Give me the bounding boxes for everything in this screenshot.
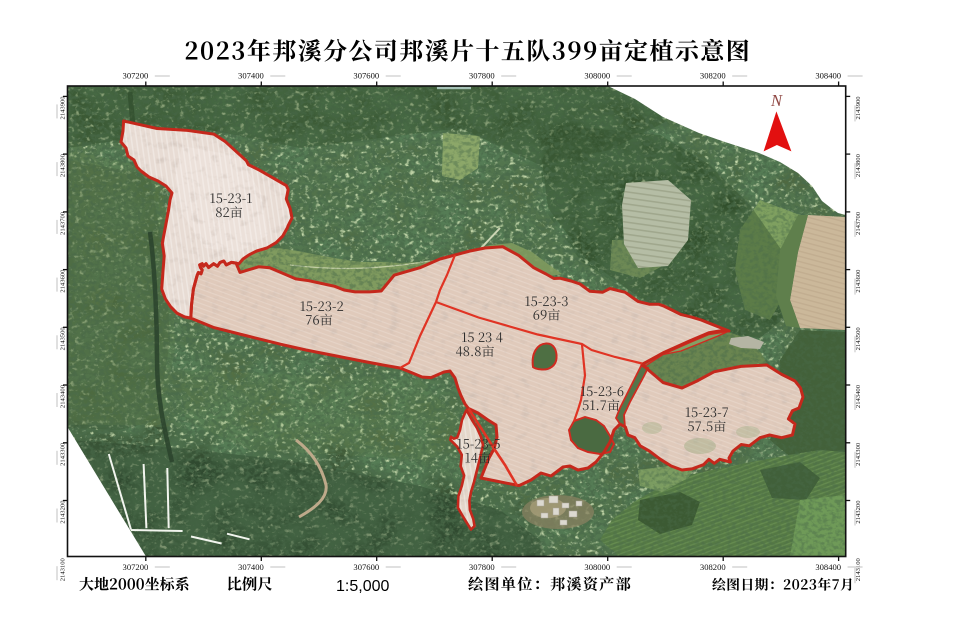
svg-text:2143100: 2143100 — [855, 557, 862, 581]
svg-text:2143400: 2143400 — [60, 384, 67, 408]
svg-text:2143900: 2143900 — [60, 96, 67, 120]
svg-text:308200: 308200 — [700, 71, 726, 81]
svg-text:2143700: 2143700 — [60, 211, 67, 235]
svg-text:307200: 307200 — [123, 562, 149, 572]
svg-text:307600: 307600 — [353, 71, 379, 81]
svg-text:2143600: 2143600 — [60, 269, 67, 293]
svg-text:307400: 307400 — [238, 562, 264, 572]
svg-text:N: N — [770, 91, 783, 110]
svg-text:307600: 307600 — [353, 562, 379, 572]
svg-text:308000: 308000 — [584, 71, 610, 81]
svg-text:2143200: 2143200 — [855, 500, 862, 524]
svg-text:2143300: 2143300 — [60, 442, 67, 466]
svg-text:2143100: 2143100 — [60, 557, 67, 581]
svg-text:308000: 308000 — [584, 562, 610, 572]
svg-text:2143800: 2143800 — [60, 153, 67, 177]
svg-text:308200: 308200 — [700, 562, 726, 572]
svg-text:307800: 307800 — [469, 71, 495, 81]
svg-text:1:5,000: 1:5,000 — [336, 578, 389, 595]
svg-text:2143800: 2143800 — [855, 153, 862, 177]
svg-text:307800: 307800 — [469, 562, 495, 572]
svg-text:2143300: 2143300 — [855, 442, 862, 466]
svg-text:2143500: 2143500 — [60, 327, 67, 351]
svg-text:2143700: 2143700 — [855, 211, 862, 235]
svg-text:308400: 308400 — [815, 562, 841, 572]
svg-text:2143900: 2143900 — [855, 96, 862, 120]
svg-text:308400: 308400 — [815, 71, 841, 81]
svg-text:2143400: 2143400 — [855, 384, 862, 408]
svg-text:2143600: 2143600 — [855, 269, 862, 293]
svg-text:2143500: 2143500 — [855, 327, 862, 351]
svg-text:307400: 307400 — [238, 71, 264, 81]
svg-text:2143200: 2143200 — [60, 500, 67, 524]
svg-text:307200: 307200 — [123, 71, 149, 81]
